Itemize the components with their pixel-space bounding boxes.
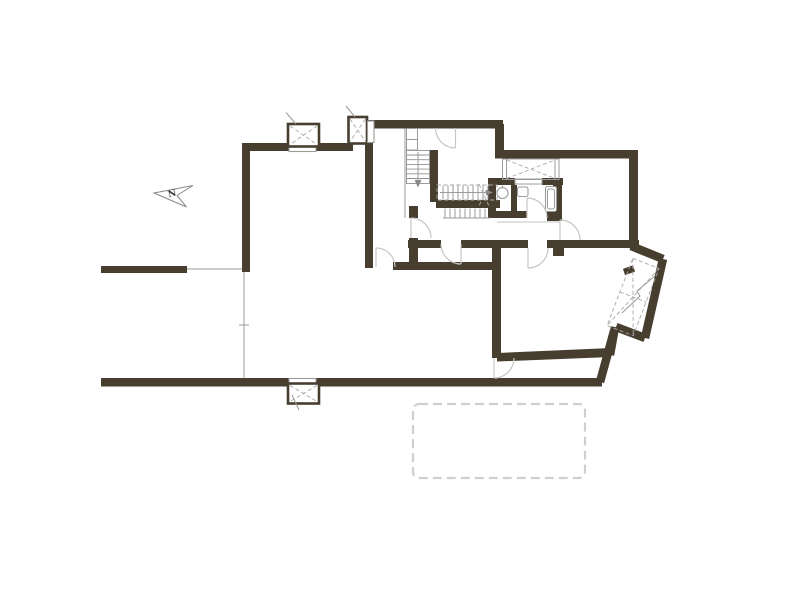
- wardrobe-closet: [503, 159, 560, 180]
- stair-upper-flight: [407, 151, 430, 188]
- chimney-entry: [346, 106, 374, 144]
- chimney-top-left: [286, 113, 319, 152]
- stair-bay-walls: [616, 246, 663, 338]
- door-top-entry: [436, 128, 456, 148]
- floor-plan-drawing: N: [0, 0, 800, 600]
- door-bathroom: [527, 198, 547, 218]
- door-right-room: [528, 248, 548, 268]
- stair-lower-flight: [443, 209, 490, 219]
- door-bedroom: [560, 220, 580, 240]
- north-arrow: N: [154, 186, 193, 208]
- chimney-bottom: [288, 379, 319, 411]
- floor-plan-canvas: N: [0, 0, 800, 600]
- door-hall-south: [376, 248, 395, 267]
- sink-basin: [497, 188, 508, 199]
- toilet: [518, 187, 529, 197]
- door-hall-corridor: [411, 218, 431, 238]
- door-corridor-south: [441, 244, 461, 264]
- stair-shelf-cells: [407, 129, 418, 151]
- pool-dashed-outline: [413, 404, 585, 478]
